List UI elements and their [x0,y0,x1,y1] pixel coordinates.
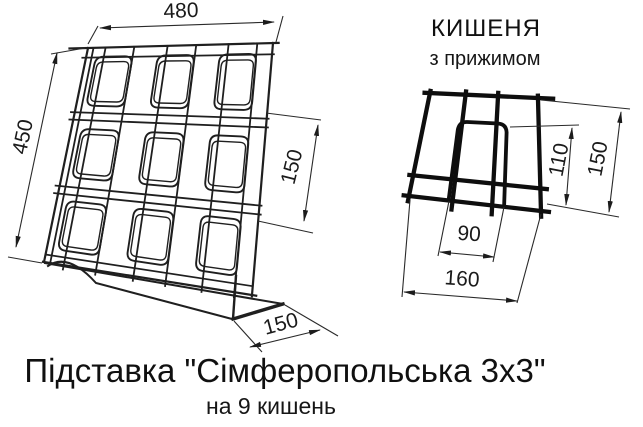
horizontal-wire [70,43,279,49]
horizontal-wire [69,120,268,128]
vertical-wire [133,46,168,281]
pocket-grid-wires [404,90,553,216]
weld-dot [535,95,540,100]
dim-pocket-width-label: 160 [444,266,481,291]
weld-dot [406,193,411,198]
horizontal-wire [43,262,256,296]
weld-dot [538,208,543,213]
horizontal-wire [425,93,553,99]
extension-line [8,257,42,263]
horizontal-wire [71,112,269,119]
extension-line [493,207,504,262]
weld-dot [411,173,416,178]
weld-dot [489,203,494,208]
dimension-line-width [100,22,274,28]
dimension-line-clamp-width [440,252,494,257]
detail-heading: КИШЕНЯ [431,15,541,43]
vertical-wire [408,91,431,201]
detail-subheading: з прижимом [429,48,540,71]
stand-pockets [59,54,256,275]
extension-line [402,200,410,297]
weld-dot [538,186,543,191]
pocket-outline [73,129,119,180]
vertical-wire [492,93,499,214]
dim-clamp-height-label: 110 [545,141,574,178]
weld-dot [463,92,468,97]
weld-dot [491,181,496,186]
product-subtitle: на 9 кишень [206,393,336,420]
vertical-wire [44,48,88,262]
pocket-outline [139,132,183,186]
vertical-wire [50,48,93,263]
extension-line [266,113,321,120]
weld-dot [450,198,455,203]
extension-line [234,321,262,352]
extension-line [547,204,619,217]
extension-line [51,48,85,54]
extension-line [510,125,579,127]
dim-pocket-height-label: 150 [583,139,612,178]
base-floor-line [45,263,283,304]
extension-line [276,16,283,42]
technical-drawing-page: 480 450 150 150 110 [0,0,643,427]
weld-dot [452,177,457,182]
extension-line [541,100,630,109]
extension-line [258,221,313,233]
weld-dot [495,94,500,99]
dimension-line-pocket-width [404,292,517,301]
dim-height-label: 450 [8,117,38,156]
dim-row-pitch-label: 150 [277,147,308,187]
dim-width-label: 480 [163,0,199,23]
stand-base [45,262,283,319]
dimension-line-pocket-height [609,112,621,212]
dimension-line-row-pitch [304,125,318,221]
dim-base-depth-label: 150 [261,308,301,339]
weld-dot [427,90,432,95]
vertical-wire [202,44,229,292]
extension-line [88,26,98,44]
pocket-detail-drawing: 110 150 90 160 [402,90,630,303]
horizontal-wire [404,195,549,212]
product-title: Підставка "Сімферопольська 3х3" [24,352,545,390]
vertical-wire [538,96,541,217]
pocket-outline [151,55,194,108]
dim-clamp-width-label: 90 [457,222,482,247]
extension-line [517,214,541,303]
extension-line [438,201,449,256]
horizontal-wire [409,175,546,189]
stand-isometric-drawing: 480 450 150 150 [8,0,338,352]
